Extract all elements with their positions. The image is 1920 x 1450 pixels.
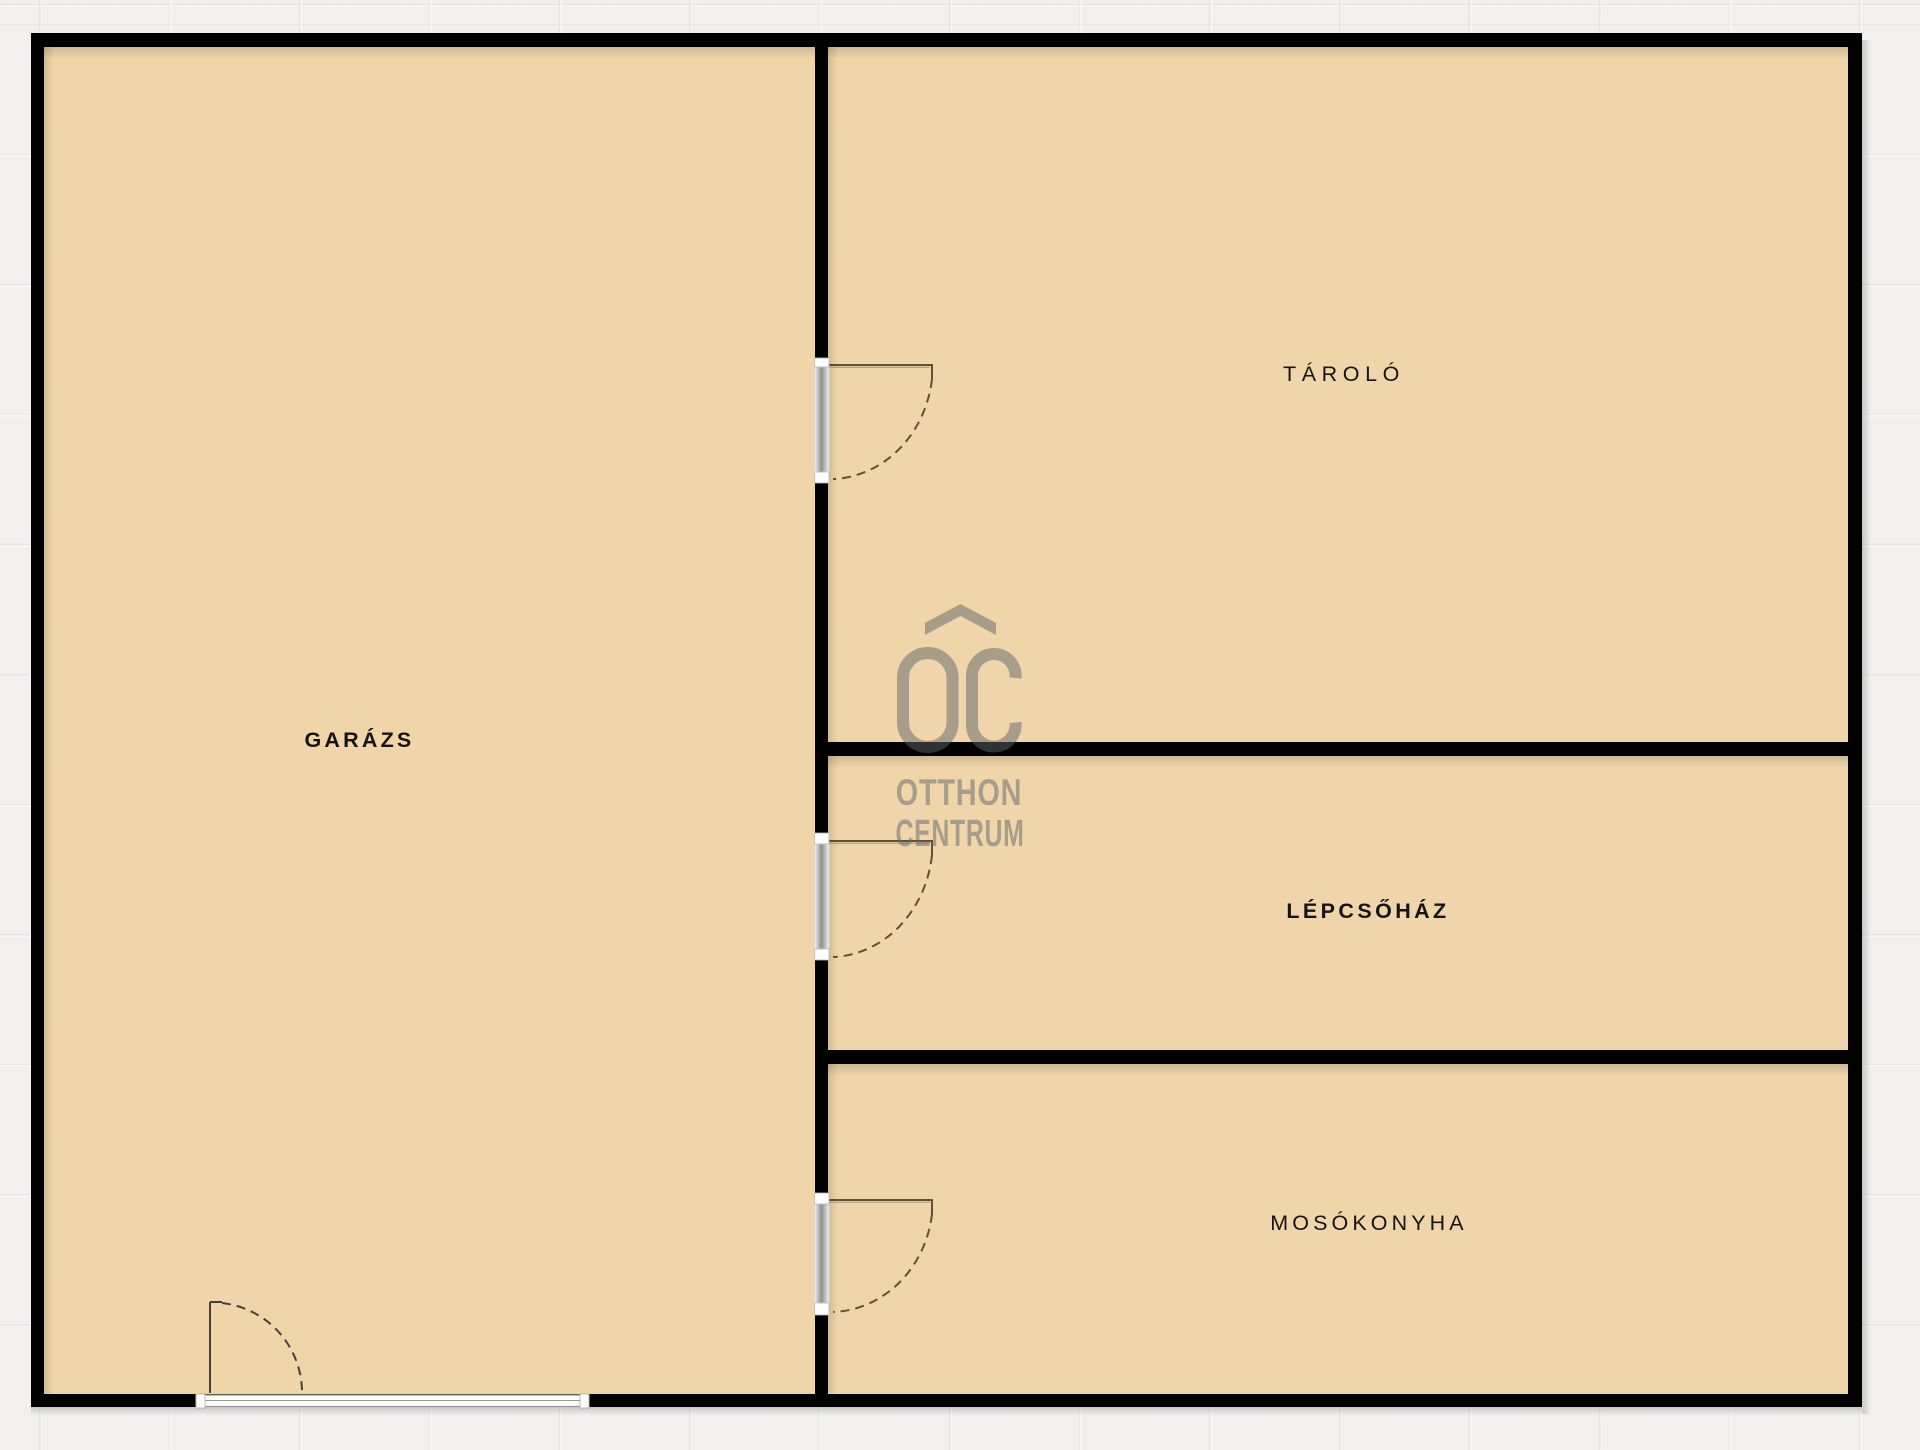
svg-text:MOSÓKONYHA: MOSÓKONYHA [1270,1210,1468,1235]
svg-text:LÉPCSŐHÁZ: LÉPCSŐHÁZ [1286,898,1449,923]
svg-text:OTTHON: OTTHON [896,773,1022,814]
svg-text:TÁROLÓ: TÁROLÓ [1283,361,1405,386]
svg-text:GARÁZS: GARÁZS [305,727,415,752]
svg-text:CENTRUM: CENTRUM [896,812,1025,855]
